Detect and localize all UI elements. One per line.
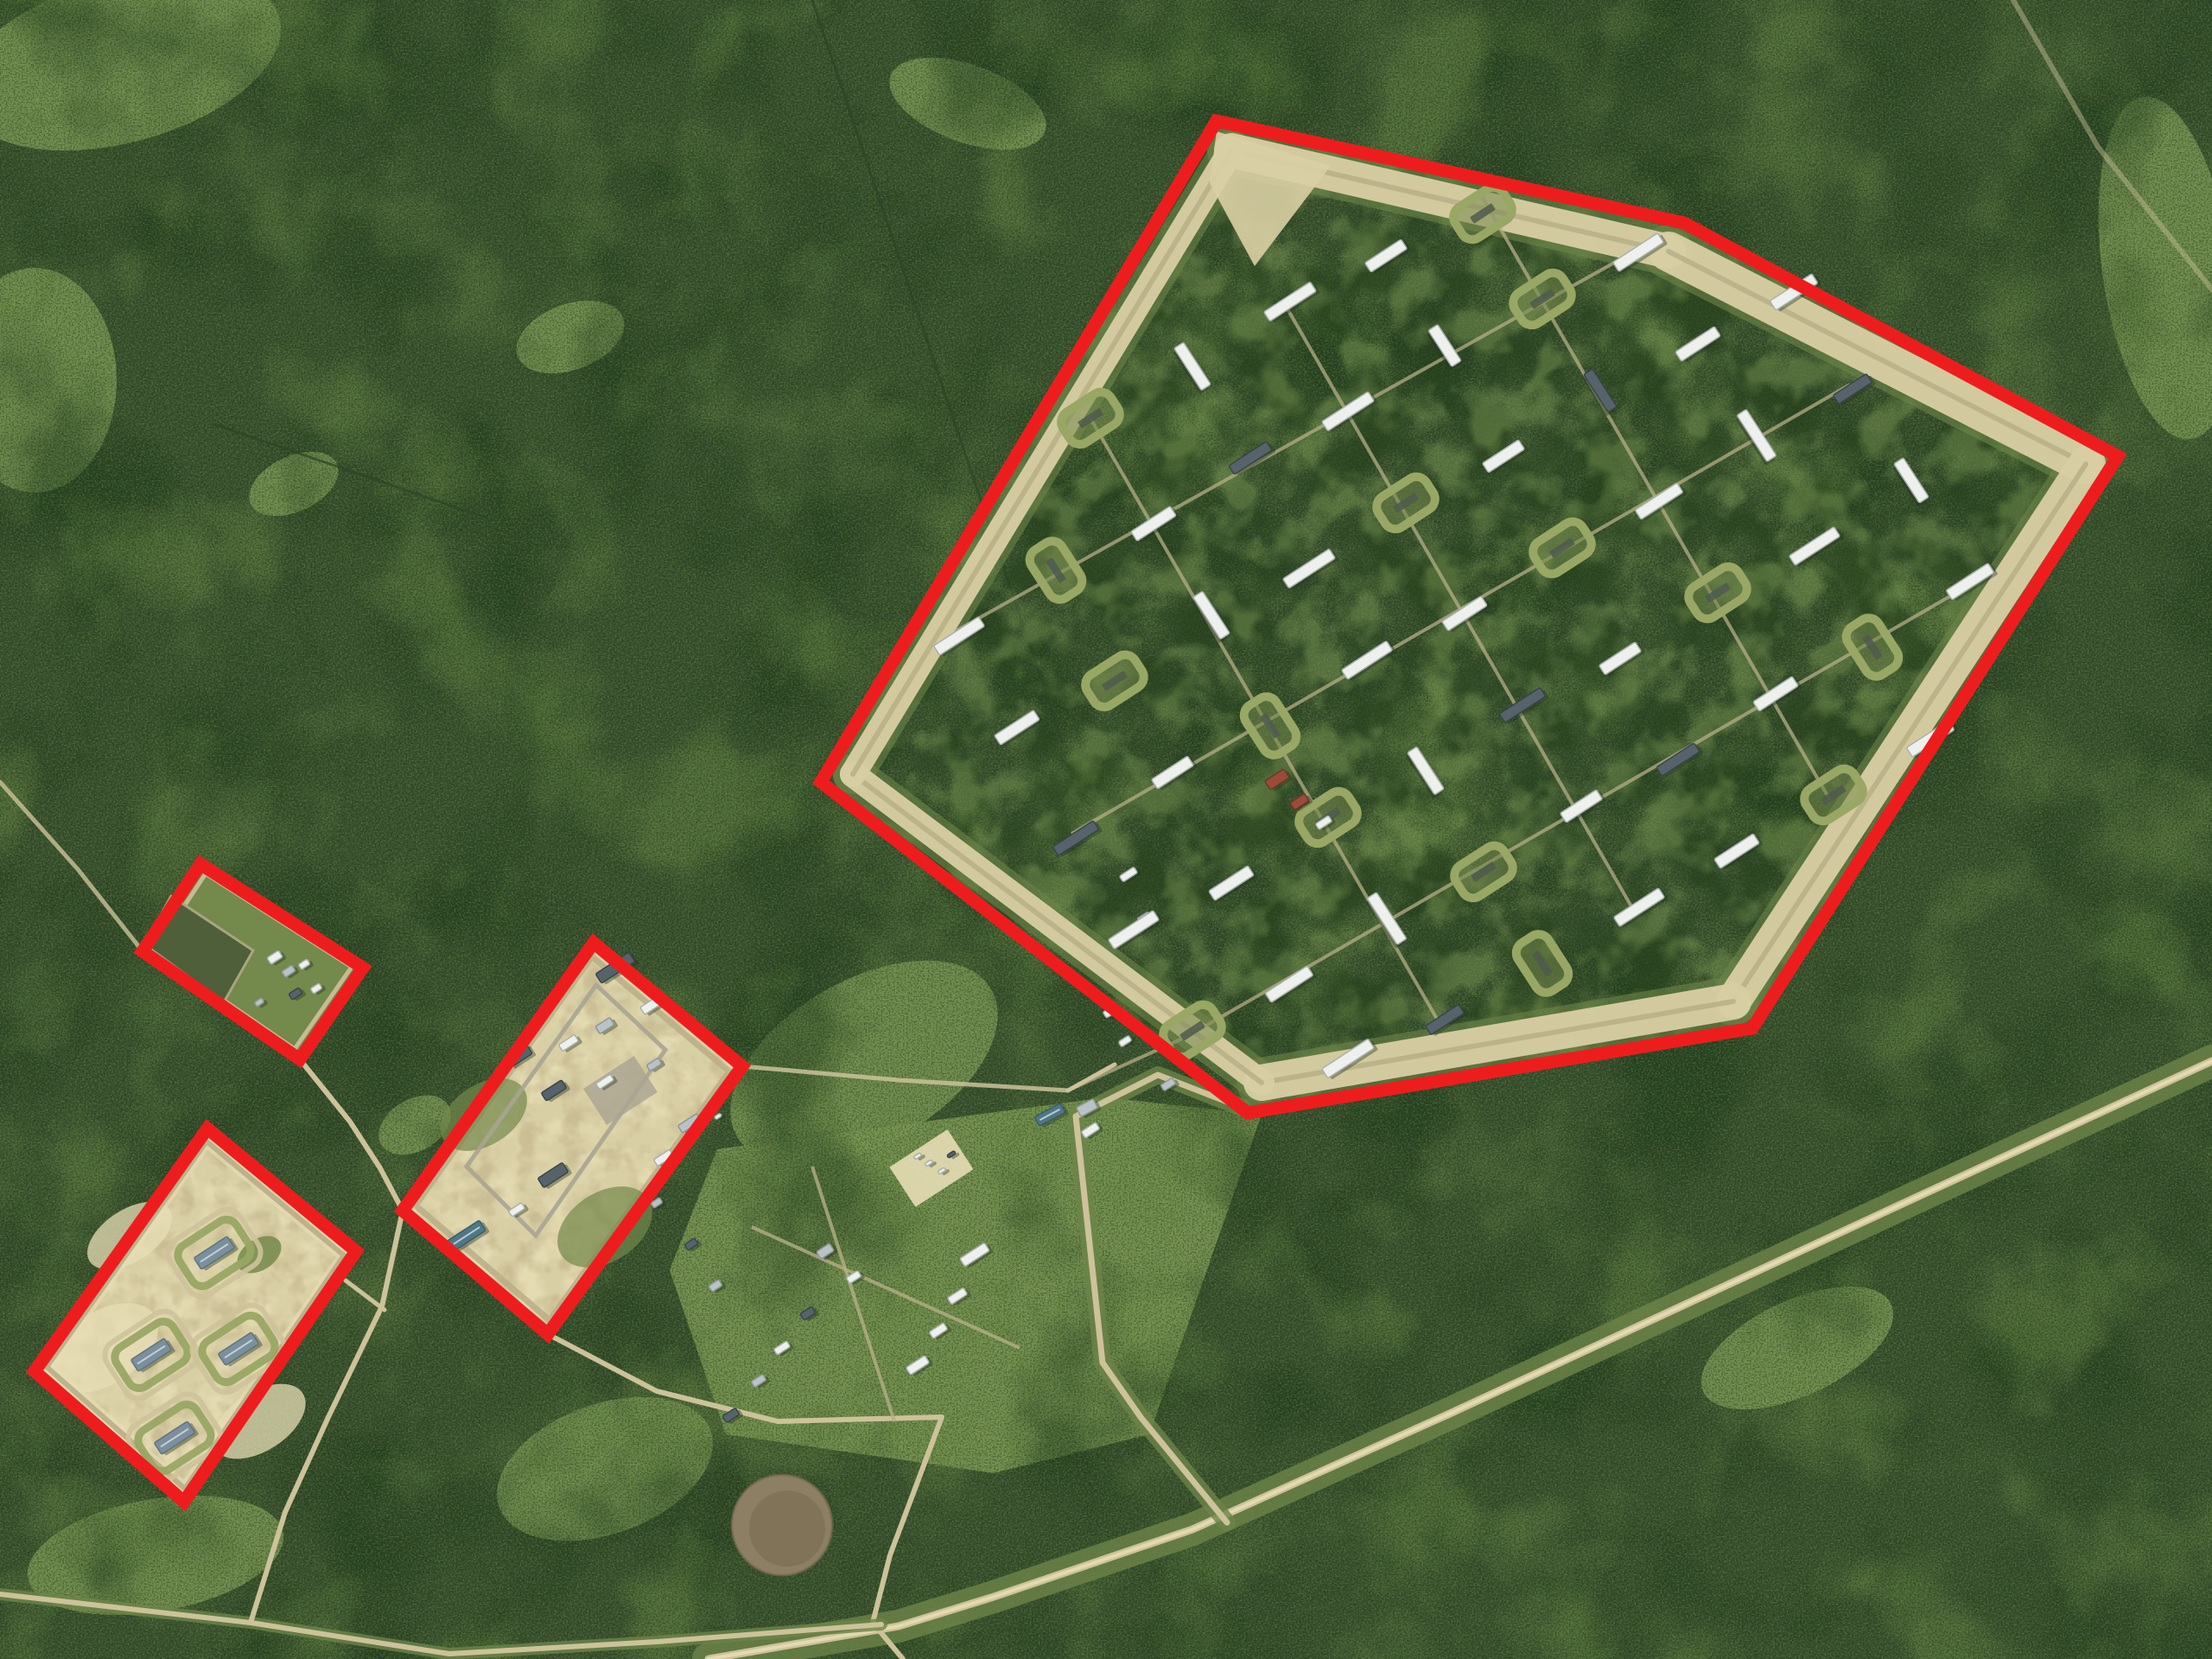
satellite-image (0, 0, 2212, 1659)
aerial-photo-canvas (0, 0, 2212, 1659)
